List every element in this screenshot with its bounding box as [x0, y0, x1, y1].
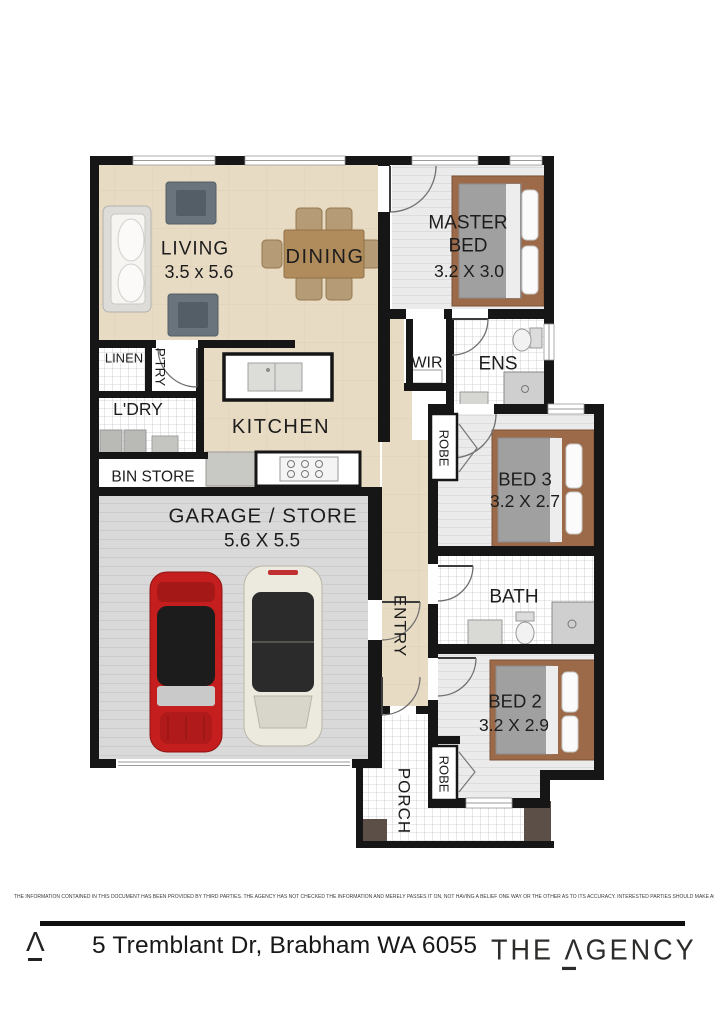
dining-label: DINING: [286, 246, 365, 268]
kitchen-island: [224, 354, 332, 400]
entry-floor: [382, 440, 430, 708]
porch-pillar: [362, 819, 387, 844]
laundry-label: L'DRY: [113, 399, 163, 419]
logo-mark-dash: [28, 958, 42, 961]
red-car-icon: [150, 572, 222, 752]
wall-robe2-top: [428, 736, 460, 744]
wall-porch-left: [356, 762, 363, 848]
porch-label: PORCH: [395, 768, 414, 834]
living-label: LIVING: [161, 239, 229, 260]
wall-laundry-bottom: [90, 452, 208, 459]
bed2-dims: 3.2 X 2.9: [479, 715, 549, 735]
opening-wir: [406, 309, 444, 319]
wall-bed2-top: [428, 644, 604, 654]
wall-linen-bottom: [90, 391, 204, 398]
garage-dims: 5.6 X 5.5: [224, 531, 300, 552]
kitchen-label: KITCHEN: [232, 416, 330, 438]
entry-label: ENTRY: [391, 595, 410, 657]
wall-right: [594, 404, 604, 780]
wall-wir-bottom: [404, 383, 454, 391]
living-dims: 3.5 x 5.6: [164, 262, 233, 282]
master-bed-label-2: BED: [448, 236, 487, 257]
wall-porch-bottom: [356, 841, 554, 848]
wall-master-right: [544, 156, 554, 412]
cooktop-icon: [280, 457, 338, 481]
toilet-icon: [516, 622, 534, 644]
white-car-icon: [244, 566, 322, 746]
shower-icon: [504, 372, 546, 406]
wall-wir-left: [406, 319, 413, 387]
wordmark-lambda: Λ: [565, 934, 586, 966]
garage-label: GARAGE / STORE: [168, 505, 357, 528]
sofa: [103, 206, 151, 312]
footer-divider: [40, 921, 685, 926]
logo-mark-glyph: Λ: [26, 926, 45, 957]
garage-door: [116, 759, 352, 768]
window: [466, 798, 512, 808]
wir-shelf: [410, 370, 442, 383]
window: [133, 156, 215, 165]
pantry-label: P'TRY: [153, 348, 168, 386]
robe3-label: ROBE: [437, 430, 452, 467]
window: [412, 156, 478, 165]
vanity-icon: [460, 392, 488, 406]
toilet-icon: [530, 328, 542, 348]
agency-wordmark: THE ΛGENCY: [491, 934, 697, 967]
bed3-icon: [492, 430, 594, 550]
wordmark-the: THE: [491, 934, 565, 966]
vanity-icon: [468, 620, 502, 646]
master-bed-label-1: MASTER: [428, 213, 507, 234]
floorplan-page: LIVING 3.5 x 5.6 DINING KITCHEN MASTER B…: [0, 0, 725, 1024]
bed3-dims: 3.2 X 2.7: [490, 491, 560, 511]
bathtub-icon: [552, 602, 596, 648]
window: [245, 156, 345, 165]
bed2-label: BED 2: [488, 691, 541, 712]
bath-label: BATH: [489, 587, 538, 608]
robe2-label: ROBE: [437, 756, 452, 793]
armchair: [168, 294, 218, 336]
bed3-label: BED 3: [498, 469, 551, 490]
agency-logo-mark-icon: Λ: [26, 926, 45, 958]
wall-bath-top: [428, 546, 604, 556]
window: [548, 404, 584, 414]
window: [544, 324, 554, 360]
bin-store-label: BIN STORE: [111, 469, 194, 486]
wall-wir-ens: [446, 319, 454, 408]
window: [510, 156, 542, 165]
kitchen-bench: [206, 452, 360, 486]
wordmark-dash: [562, 967, 576, 970]
wall-garage-top: [90, 487, 382, 496]
wordmark-gency: GENCY: [586, 934, 697, 966]
master-bed-dims: 3.2 X 3.0: [434, 261, 504, 281]
ens-label: ENS: [478, 354, 517, 375]
property-address: 5 Tremblant Dr, Brabham WA 6055: [92, 932, 477, 960]
disclaimer-text: THE INFORMATION CONTAINED IN THIS DOCUME…: [14, 894, 714, 900]
wall-left: [90, 156, 99, 768]
linen-label: LINEN: [105, 351, 143, 366]
wall-linen-pantry: [145, 340, 152, 398]
floorplan-drawing: LIVING 3.5 x 5.6 DINING KITCHEN MASTER B…: [0, 0, 725, 885]
armchair: [166, 182, 216, 224]
wir-label: WIR: [411, 355, 442, 372]
